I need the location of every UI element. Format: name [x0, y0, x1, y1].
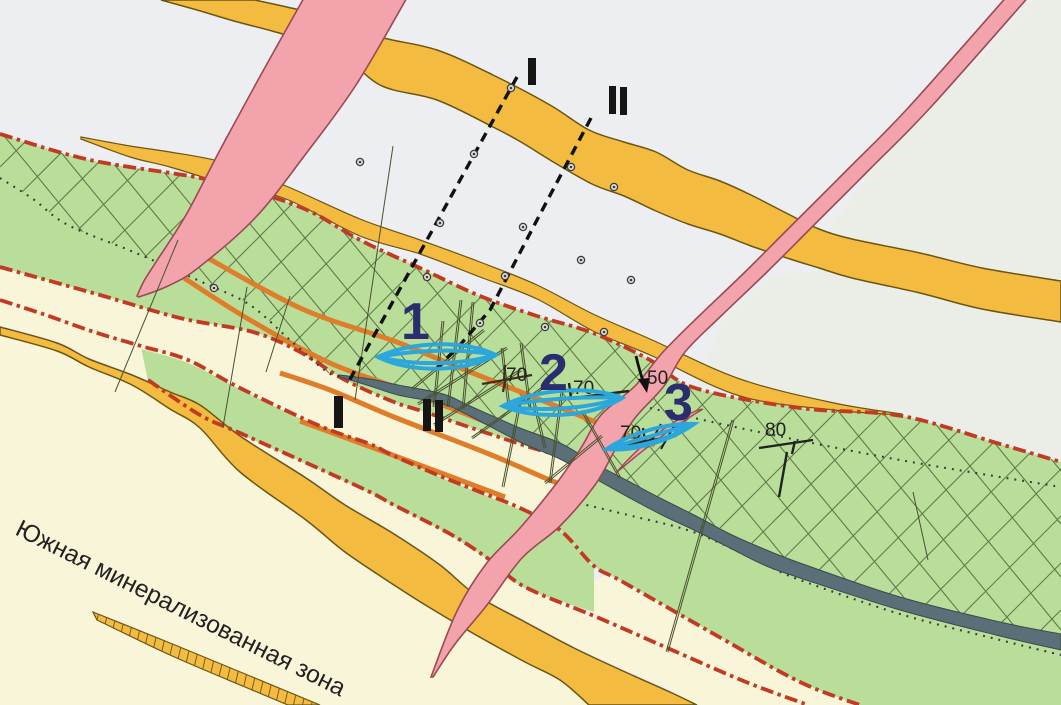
svg-text:80: 80 — [765, 420, 786, 441]
svg-text:2: 2 — [539, 344, 568, 402]
svg-text:3: 3 — [664, 374, 693, 432]
svg-text:1: 1 — [401, 293, 430, 351]
svg-text:70: 70 — [506, 365, 527, 386]
